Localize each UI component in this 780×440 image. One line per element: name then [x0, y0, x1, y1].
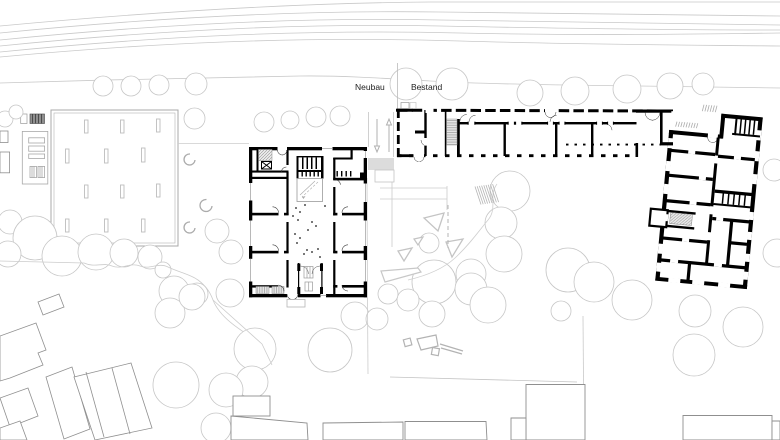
- svg-text:Neubau: Neubau: [355, 82, 385, 92]
- svg-text:Bestand: Bestand: [411, 82, 442, 92]
